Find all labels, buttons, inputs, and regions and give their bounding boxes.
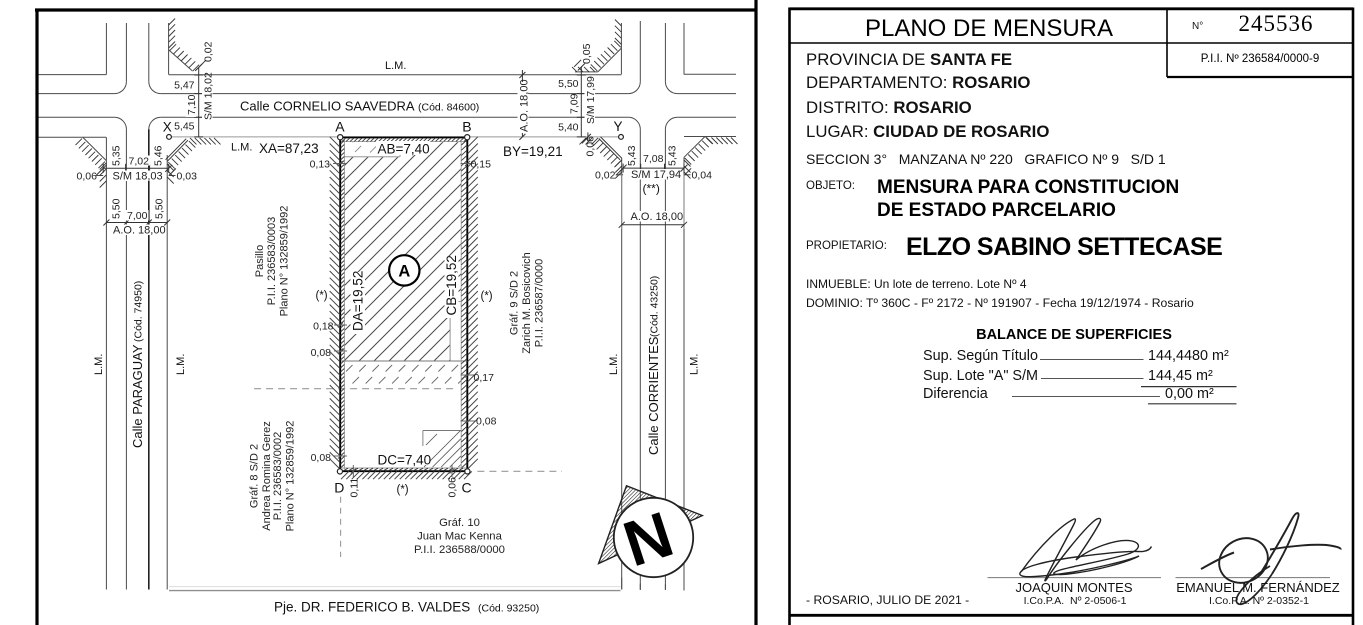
svg-text:5,43: 5,43	[667, 145, 679, 166]
svg-text:0,13: 0,13	[310, 158, 331, 170]
svg-text:A: A	[335, 119, 345, 135]
svg-text:(*): (*)	[481, 291, 493, 303]
svg-text:Gráf. 9 S/D 2: Gráf. 9 S/D 2	[509, 271, 521, 335]
svg-text:X: X	[163, 120, 172, 135]
svg-text:Y: Y	[614, 119, 623, 134]
svg-text:Gráf. 10: Gráf. 10	[439, 517, 480, 529]
svg-text:(*): (*)	[316, 290, 328, 302]
svg-text:L.M.: L.M.	[175, 354, 187, 375]
svg-text:P.I.I. 236583/0003: P.I.I. 236583/0003	[266, 217, 278, 306]
svg-text:Calle PARAGUAY: Calle PARAGUAY	[130, 344, 145, 448]
svg-text:P.I.I. 236583/0002: P.I.I. 236583/0002	[272, 432, 284, 521]
svg-text:S/M 18,03: S/M 18,03	[113, 171, 163, 183]
svg-text:7,10: 7,10	[186, 94, 198, 115]
svg-text:0,05: 0,05	[581, 43, 593, 64]
svg-text:5,50: 5,50	[154, 198, 166, 219]
svg-text:D: D	[334, 480, 344, 496]
svg-text:Andrea Romina Gerez: Andrea Romina Gerez	[261, 421, 273, 530]
svg-text:P.I.I. 236587/0000: P.I.I. 236587/0000	[533, 259, 545, 348]
svg-text:Pje. DR. FEDERICO B. VALDES: Pje. DR. FEDERICO B. VALDES	[274, 600, 470, 615]
svg-text:L.M.: L.M.	[385, 60, 406, 72]
svg-text:0,15: 0,15	[471, 158, 492, 170]
svg-text:7,08: 7,08	[643, 153, 664, 165]
svg-text:Calle CORRIENTES: Calle CORRIENTES	[646, 336, 661, 455]
svg-text:(Cód. 43250): (Cód. 43250)	[649, 276, 661, 337]
svg-text:Calle CORNELIO SAAVEDRA: Calle CORNELIO SAAVEDRA	[240, 99, 415, 114]
svg-text:0,08: 0,08	[476, 416, 497, 428]
svg-text:0,06: 0,06	[447, 477, 459, 498]
svg-text:A.O. 18,00: A.O. 18,00	[113, 225, 166, 237]
svg-text:Zarich M. Bosicovich: Zarich M. Bosicovich	[521, 252, 533, 353]
svg-text:0,04: 0,04	[692, 170, 713, 182]
svg-text:(Cód. 74950): (Cód. 74950)	[133, 281, 145, 342]
svg-text:5,46: 5,46	[153, 145, 165, 166]
svg-text:DA=19,52: DA=19,52	[351, 271, 366, 331]
svg-text:0,18: 0,18	[313, 321, 334, 333]
svg-text:C: C	[462, 480, 472, 496]
svg-text:7,09: 7,09	[568, 93, 580, 114]
svg-text:5,35: 5,35	[111, 145, 123, 166]
svg-text:5,43: 5,43	[626, 145, 638, 166]
svg-text:Juan Mac Kenna: Juan Mac Kenna	[417, 531, 502, 543]
svg-text:L.M.: L.M.	[689, 354, 701, 375]
svg-text:(*): (*)	[397, 484, 409, 496]
svg-text:P.I.I. 236588/0000: P.I.I. 236588/0000	[414, 544, 505, 556]
svg-text:5,50: 5,50	[111, 198, 123, 219]
svg-text:5,45: 5,45	[174, 121, 195, 133]
svg-text:0,08: 0,08	[311, 452, 332, 464]
svg-text:0,06: 0,06	[77, 171, 98, 183]
svg-text:S/M 17,99: S/M 17,99	[585, 76, 597, 124]
svg-text:7,00: 7,00	[127, 210, 148, 222]
svg-text:0,17: 0,17	[474, 372, 495, 384]
svg-text:0,08: 0,08	[311, 347, 332, 359]
svg-text:L.M.: L.M.	[93, 354, 105, 375]
svg-text:S/M 18,02: S/M 18,02	[203, 72, 215, 120]
svg-text:L.M.: L.M.	[608, 354, 620, 375]
svg-text:(**): (**)	[643, 182, 660, 196]
svg-text:0,02: 0,02	[595, 170, 616, 182]
svg-text:CB=19,52: CB=19,52	[444, 255, 459, 315]
svg-text:Plano N° 132859/1992: Plano N° 132859/1992	[279, 206, 291, 317]
svg-text:5,50: 5,50	[558, 78, 579, 90]
svg-text:A: A	[398, 262, 410, 280]
svg-text:0,03: 0,03	[177, 171, 198, 183]
svg-text:DC=7,40: DC=7,40	[378, 453, 432, 468]
svg-text:0,02: 0,02	[203, 41, 215, 62]
svg-text:Pasillo: Pasillo	[254, 245, 266, 277]
svg-text:7,02: 7,02	[129, 156, 150, 168]
svg-text:BY=19,21: BY=19,21	[503, 144, 563, 159]
svg-text:0,06: 0,06	[585, 136, 597, 157]
svg-text:B: B	[462, 119, 471, 135]
svg-text:A.O. 18,00: A.O. 18,00	[519, 79, 531, 132]
svg-text:(Cód. 93250): (Cód. 93250)	[478, 603, 539, 615]
svg-text:XA=87,23: XA=87,23	[259, 141, 319, 156]
svg-text:L.M.: L.M.	[231, 142, 252, 154]
svg-text:Gráf. 8 S/D 2: Gráf. 8 S/D 2	[249, 444, 261, 508]
svg-text:0,11: 0,11	[349, 478, 361, 498]
svg-text:(Cód. 84600): (Cód. 84600)	[418, 102, 479, 114]
svg-text:A.O. 18,00: A.O. 18,00	[631, 211, 684, 223]
svg-text:5,47: 5,47	[174, 80, 195, 92]
svg-text:5,40: 5,40	[558, 122, 579, 134]
svg-text:Plano N° 132859/1992: Plano N° 132859/1992	[284, 421, 296, 532]
svg-text:S/M 17,94: S/M 17,94	[631, 169, 681, 181]
svg-text:AB=7,40: AB=7,40	[378, 142, 430, 157]
